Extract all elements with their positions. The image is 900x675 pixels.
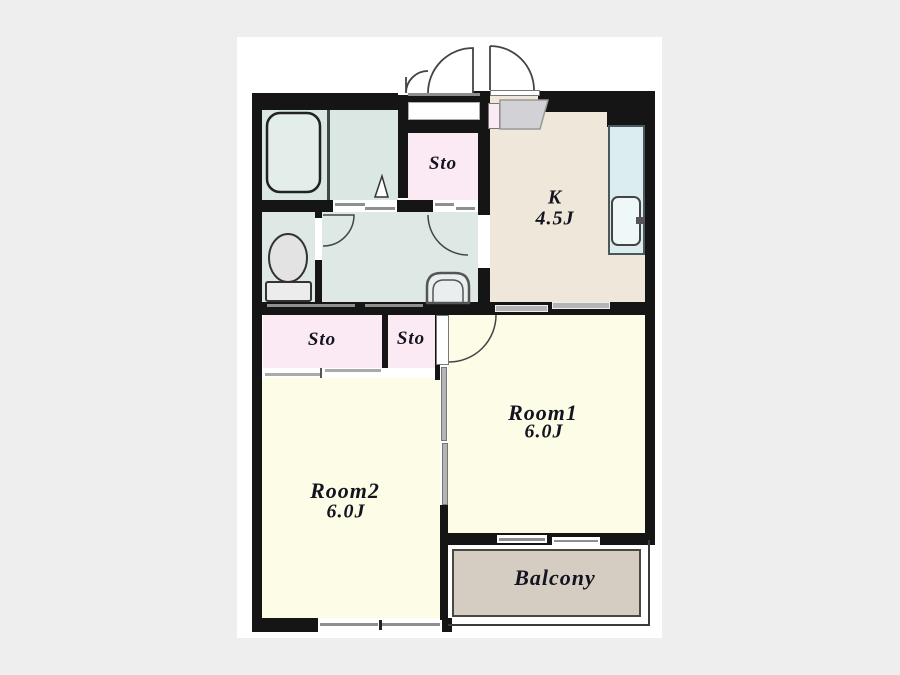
wall-left: [252, 93, 262, 632]
storage-top-door-opening: [433, 200, 478, 212]
toilet-hallway-area: [262, 212, 478, 302]
kitchen-sliding-door-panel: [552, 302, 610, 309]
wall-right: [645, 100, 655, 540]
storage-door-panel: [456, 207, 475, 210]
bathroom-divider: [327, 108, 330, 200]
wall-top-left: [252, 93, 398, 110]
wall-entry-thin: [398, 95, 480, 102]
bathroom-door-panel: [365, 207, 395, 210]
sliding-door-panel: [442, 443, 448, 505]
bathroom-area: [262, 108, 398, 200]
closet-door-meeting-mark: [320, 368, 322, 378]
closet-sliding-doors: [263, 368, 382, 378]
hallway-wall-mark: [267, 304, 355, 307]
window-pane: [499, 538, 545, 541]
storage-right-label: Sto: [397, 328, 425, 350]
balcony-label: Balcony: [514, 565, 596, 591]
wall-top-right: [538, 91, 607, 112]
wall-hall-kitchen: [478, 268, 490, 302]
toilet-door-opening: [315, 218, 322, 260]
closet-door-panel: [265, 373, 321, 376]
storage-top-label: Sto: [429, 153, 457, 175]
room2-size-label: 6.0J: [327, 501, 366, 524]
window-divider: [379, 620, 382, 630]
hallway-wall-mark: [365, 304, 423, 307]
kitchen-sliding-door-panel: [495, 305, 548, 312]
storage-door-panel: [435, 203, 454, 206]
kitchen-name-label: K: [548, 187, 562, 210]
entrance-threshold: [408, 102, 480, 120]
closet-door-panel: [325, 369, 381, 372]
storage-left-label: Sto: [308, 329, 336, 351]
room-divider-sliding-doors: [440, 365, 448, 505]
entrance-door-sill: [490, 90, 540, 96]
floorplan-screenshot: { "palette": { "bg": "#eeeeee", "paper":…: [0, 0, 900, 675]
kitchen-counter: [608, 125, 645, 255]
room1-door-leaf: [436, 315, 449, 365]
floorplan-paper: Sto K 4.5J Sto Sto Room1 6.0J Room2 6.0J…: [237, 37, 662, 638]
wall-sto-top-left: [398, 95, 408, 198]
bathroom-door-panel: [335, 203, 365, 206]
room2-window: [318, 620, 442, 630]
window-pane: [320, 623, 378, 626]
window-pane: [554, 540, 598, 543]
entry-side-cabinet: [488, 103, 500, 129]
sliding-door-panel: [441, 367, 447, 441]
wall-room-divider-lower: [440, 505, 448, 620]
balcony-window-left: [497, 535, 547, 543]
wall-bottom-left: [252, 618, 318, 632]
wall-bottom-stub: [442, 618, 452, 632]
room1-size-label: 6.0J: [525, 421, 564, 444]
wall-sto-top: [398, 120, 488, 133]
wall-sto-divider: [382, 315, 388, 368]
entrance-door-swing-icon: [406, 46, 534, 93]
entrance-sill: [408, 93, 480, 96]
kitchen-size-label: 4.5J: [536, 208, 575, 231]
bathroom-door-opening: [333, 200, 397, 212]
kitchen-door-opening: [478, 215, 490, 268]
balcony-window-right: [552, 537, 600, 545]
window-pane: [382, 623, 440, 626]
